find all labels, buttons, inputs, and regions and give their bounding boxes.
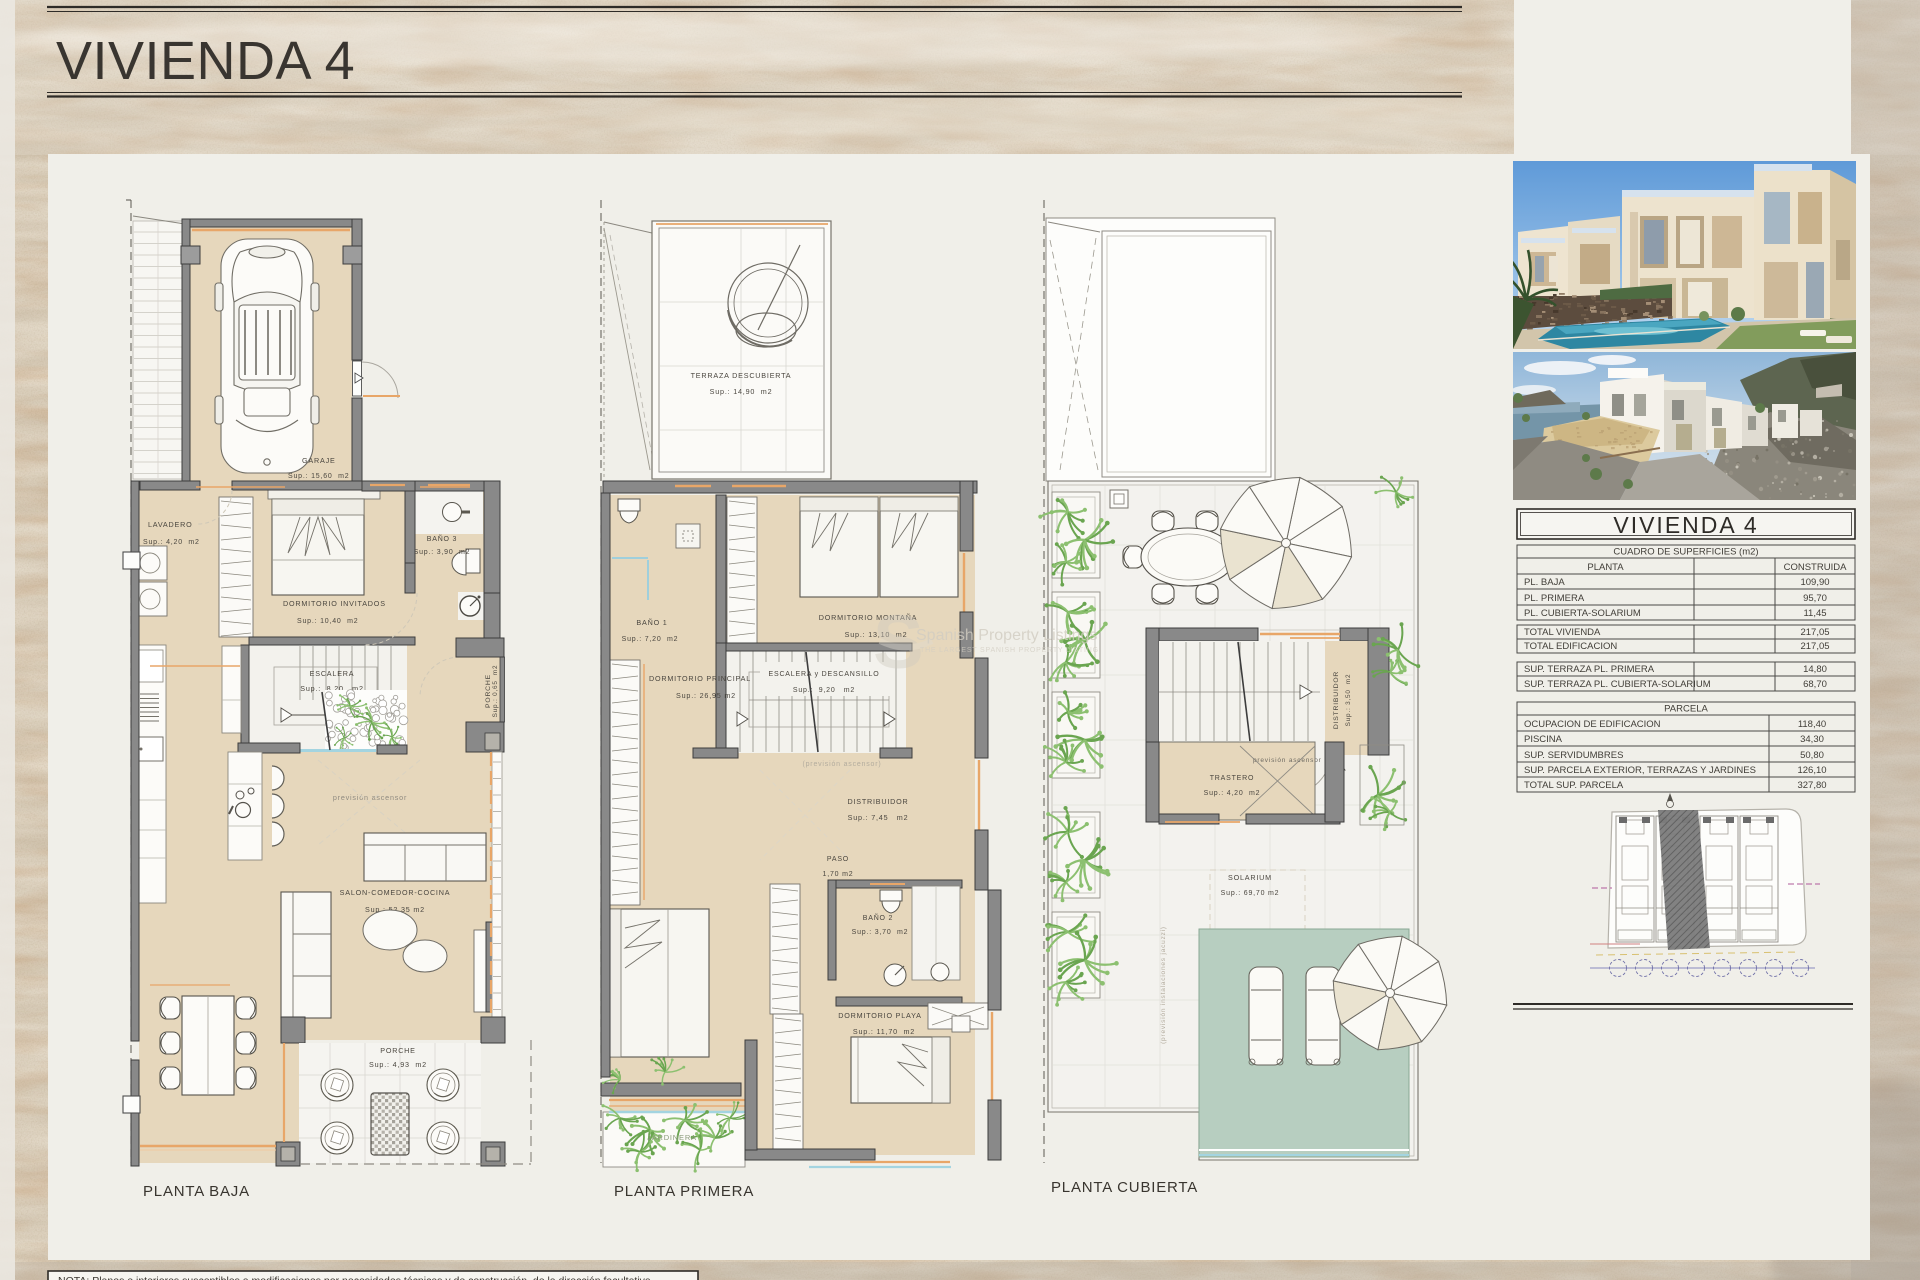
svg-text:SUP. TERRAZA PL. PRIMERA: SUP. TERRAZA PL. PRIMERA [1524,664,1655,675]
svg-text:217,05: 217,05 [1800,627,1829,638]
svg-text:SOLARIUM: SOLARIUM [1228,873,1272,882]
svg-text:Sup.: 7,20 m2: Sup.: 7,20 m2 [622,636,679,643]
svg-text:327,80: 327,80 [1797,780,1826,791]
svg-text:PL. BAJA: PL. BAJA [1524,577,1565,588]
svg-text:TOTAL EDIFICACION: TOTAL EDIFICACION [1524,641,1617,652]
svg-text:PORCHE: PORCHE [485,674,492,708]
svg-text:ESCALERA: ESCALERA [310,669,355,678]
svg-text:PLANTA CUBIERTA: PLANTA CUBIERTA [1051,1179,1198,1196]
svg-text:DORMITORIO INVITADOS: DORMITORIO INVITADOS [283,599,386,608]
svg-text:Sup.: 7,45 m2: Sup.: 7,45 m2 [848,813,909,822]
svg-text:Sup.: 3,50 m2: Sup.: 3,50 m2 [1345,674,1352,727]
svg-text:109,90: 109,90 [1800,577,1829,588]
svg-text:previsión ascensor: previsión ascensor [1253,757,1322,764]
svg-text:DORMITORIO PLAYA: DORMITORIO PLAYA [838,1011,922,1020]
svg-text:Sup.: 15,60 m2: Sup.: 15,60 m2 [288,473,349,480]
svg-text:Sup.: 0,65 m2: Sup.: 0,65 m2 [492,665,499,718]
svg-text:TOTAL SUP. PARCELA: TOTAL SUP. PARCELA [1524,780,1624,791]
svg-text:PLANTA PRIMERA: PLANTA PRIMERA [614,1183,754,1200]
svg-text:1,70 m2: 1,70 m2 [823,871,854,878]
svg-text:PLANTA: PLANTA [1587,562,1624,573]
svg-text:Sup.: 4,93 m2: Sup.: 4,93 m2 [369,1060,427,1069]
svg-text:Sup.: 14,90 m2: Sup.: 14,90 m2 [710,387,773,396]
svg-text:217,05: 217,05 [1800,641,1829,652]
svg-text:50,80: 50,80 [1800,750,1824,761]
svg-text:DORMITORIO PRINCIPAL: DORMITORIO PRINCIPAL [649,674,751,683]
svg-text:Sup.: 11,70 m2: Sup.: 11,70 m2 [853,1027,915,1036]
svg-text:BAÑO 1: BAÑO 1 [636,618,667,627]
svg-text:PARCELA: PARCELA [1664,704,1708,715]
svg-text:126,10: 126,10 [1797,765,1826,776]
svg-text:PL. CUBIERTA-SOLARIUM: PL. CUBIERTA-SOLARIUM [1524,608,1641,619]
svg-text:LAVADERO: LAVADERO [148,520,192,529]
svg-text:VIVIENDA 4: VIVIENDA 4 [56,31,355,91]
svg-text:BAÑO 2: BAÑO 2 [863,913,893,922]
svg-text:11,45: 11,45 [1803,608,1826,619]
svg-text:ESCALERA y DESCANSILLO: ESCALERA y DESCANSILLO [769,671,880,678]
svg-text:THE LARGEST SPANISH PROPERTY L: THE LARGEST SPANISH PROPERTY LISTING [920,647,1099,654]
svg-text:VIVIENDA 4: VIVIENDA 4 [1613,512,1758,538]
svg-text:CUADRO DE SUPERFICIES (m2): CUADRO DE SUPERFICIES (m2) [1613,547,1758,558]
svg-text:Sup.: 4,20 m2: Sup.: 4,20 m2 [1204,790,1261,797]
svg-text:TRASTERO: TRASTERO [1210,775,1255,782]
svg-text:OCUPACION DE EDIFICACION: OCUPACION DE EDIFICACION [1524,719,1661,730]
svg-text:95,70: 95,70 [1803,593,1827,604]
svg-text:TERRAZA DESCUBIERTA: TERRAZA DESCUBIERTA [691,371,792,380]
svg-text:(previsión instalaciones jacuz: (previsión instalaciones jacuzzi) [1160,926,1167,1044]
svg-text:DISTRIBUIDOR: DISTRIBUIDOR [847,797,908,806]
svg-text:PL. PRIMERA: PL. PRIMERA [1524,593,1585,604]
svg-text:JARDINERA: JARDINERA [647,1133,697,1142]
svg-text:Sup.: 10,40 m2: Sup.: 10,40 m2 [297,618,358,625]
svg-text:34,30: 34,30 [1800,734,1824,745]
svg-text:Sup.: 9,20 m2: Sup.: 9,20 m2 [793,687,855,694]
svg-text:Sup.: 3,90 m2: Sup.: 3,90 m2 [414,549,471,556]
svg-text:NOTA: Planos e interiores susc: NOTA: Planos e interiores susceptibles a… [58,1275,654,1280]
svg-text:PISCINA: PISCINA [1524,734,1563,745]
svg-text:Sup.: 4,20 m2: Sup.: 4,20 m2 [143,539,200,546]
svg-text:PASO: PASO [827,856,849,863]
svg-text:SUP. SERVIDUMBRES: SUP. SERVIDUMBRES [1524,750,1623,761]
svg-text:14,80: 14,80 [1803,664,1827,675]
svg-text:SALON-COMEDOR-COCINA: SALON-COMEDOR-COCINA [340,888,451,897]
svg-text:BAÑO 3: BAÑO 3 [427,534,457,543]
svg-text:PLANTA BAJA: PLANTA BAJA [143,1183,250,1200]
svg-text:118,40: 118,40 [1798,719,1826,730]
svg-text:68,70: 68,70 [1803,679,1827,690]
svg-text:GARAJE: GARAJE [302,456,336,465]
svg-text:CONSTRUIDA: CONSTRUIDA [1784,562,1847,573]
svg-text:Sup.: 3,70 m2: Sup.: 3,70 m2 [852,929,909,936]
svg-text:TOTAL VIVIENDA: TOTAL VIVIENDA [1524,627,1601,638]
svg-text:Sup.: 69,70 m2: Sup.: 69,70 m2 [1221,890,1280,897]
svg-text:SUP. TERRAZA PL. CUBIERTA-SOLA: SUP. TERRAZA PL. CUBIERTA-SOLARIUM [1524,679,1711,690]
svg-text:(previsión ascensor): (previsión ascensor) [802,761,881,768]
svg-text:DISTRIBUIDOR: DISTRIBUIDOR [1333,671,1340,729]
svg-text:Sup.: 26,95 m2: Sup.: 26,95 m2 [676,691,736,700]
svg-text:SUP. PARCELA EXTERIOR, TERRAZA: SUP. PARCELA EXTERIOR, TERRAZAS Y JARDIN… [1524,765,1756,776]
svg-text:Spanish Property Listings: Spanish Property Listings [916,627,1097,644]
svg-text:previsión ascensor: previsión ascensor [333,793,407,802]
svg-text:PORCHE: PORCHE [380,1046,416,1055]
